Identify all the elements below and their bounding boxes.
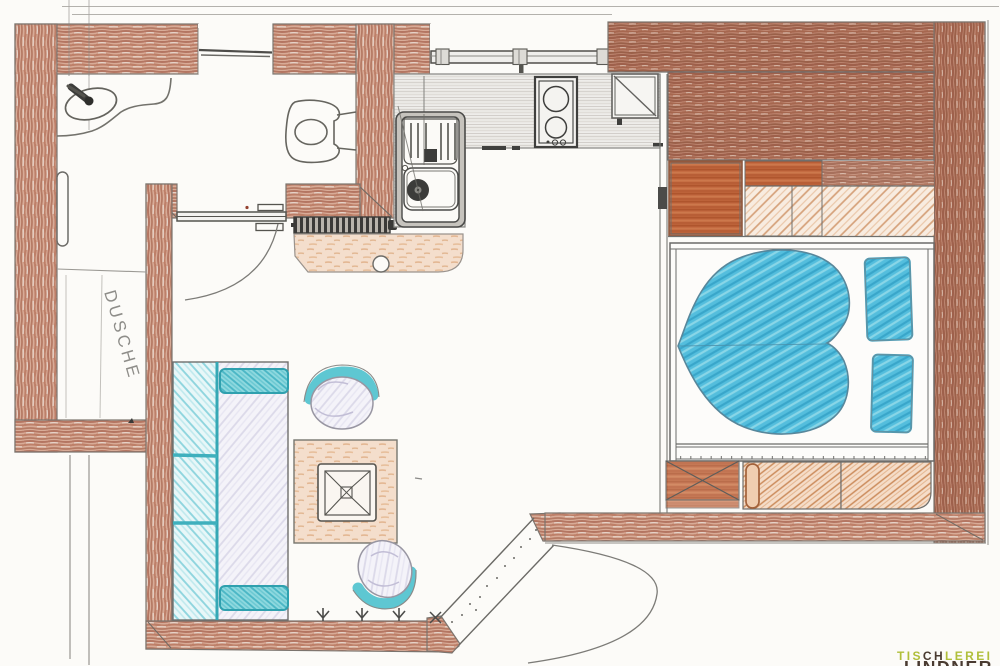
svg-text:LINDNER: LINDNER — [904, 657, 993, 666]
